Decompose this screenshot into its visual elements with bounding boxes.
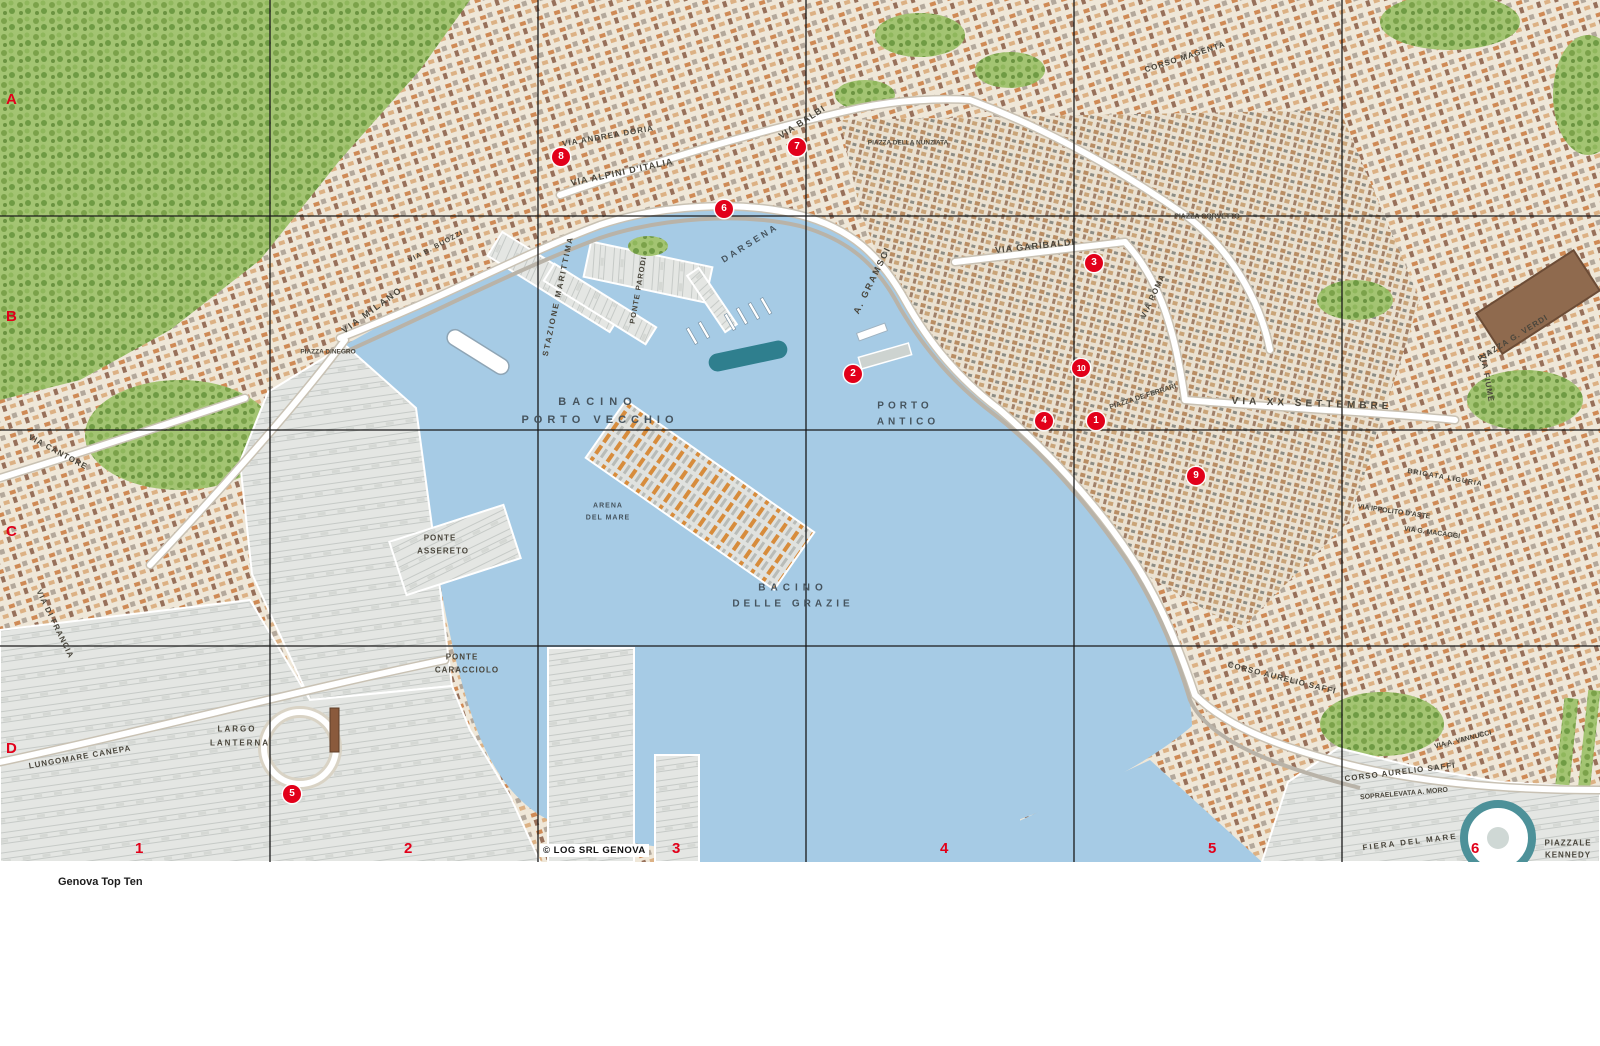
map-label: VIA FIUME [1478, 353, 1495, 403]
map-marker-8: 8 [552, 148, 570, 166]
top-ten-title: Genova Top Ten [58, 876, 186, 890]
map-marker-2: 2 [844, 365, 862, 383]
map-label: DEL MARE [586, 515, 630, 522]
map-label: ARENA [593, 503, 623, 510]
map-label: DARSENA [720, 221, 781, 264]
map-label: PIAZZALE [1544, 839, 1591, 848]
map-label: PORTO VECCHIO [521, 414, 678, 426]
grid-row-label: D [6, 740, 17, 757]
map-label: CARACCIOLO [435, 666, 499, 675]
map-label: CORSO AURELIO SAFFI [1344, 761, 1456, 784]
map-marker-1: 1 [1087, 412, 1105, 430]
grid-row-label: B [6, 308, 17, 325]
map-canvas: BACINOPORTO VECCHIOPORTOANTICOBACINODELL… [0, 0, 1600, 862]
map-overlay: BACINOPORTO VECCHIOPORTOANTICOBACINODELL… [0, 0, 1600, 862]
map-label: VIA DI FRANCIA [34, 588, 75, 660]
map-label: VIA B. BUOZZI [407, 230, 464, 265]
map-label: LANTERNA [210, 739, 270, 748]
grid-row-label: A [6, 91, 17, 108]
map-label: ANTICO [877, 417, 939, 428]
grid-col-label: 1 [135, 840, 143, 857]
map-label: FIERA DEL MARE [1362, 832, 1458, 853]
map-label: DELLE GRAZIE [732, 599, 853, 610]
map-marker-6: 6 [715, 200, 733, 218]
map-label: SOPRAELEVATA A. MORO [1360, 787, 1448, 802]
top-ten-column: Genova Top Ten [36, 876, 186, 1046]
map-label: PORTO [877, 401, 932, 412]
map-label: VIA ALPINI D'ITALIA [570, 156, 675, 188]
map-label: VIA G. MACAGGI [1404, 526, 1461, 541]
map-label: PIAZZA CORVETTO [1174, 214, 1240, 221]
map-label: VIA A. VANNUCCI [1434, 730, 1492, 751]
map-marker-7: 7 [788, 138, 806, 156]
grid-col-label: 4 [940, 840, 948, 857]
map-label: VIA XX SETTEMBRE [1231, 396, 1392, 413]
map-label: VIA IPPOLITO D'ASTE [1357, 503, 1430, 520]
map-label: PIAZZA DELLA NUNZIATA [868, 140, 949, 147]
map-label: PONTE [446, 653, 479, 662]
map-label: VIA ROMA [1139, 272, 1167, 319]
map-label: KENNEDY [1545, 851, 1591, 860]
genova-tourist-map: BACINOPORTO VECCHIOPORTOANTICOBACINODELL… [0, 0, 1600, 1046]
map-label: BACINO [758, 583, 827, 594]
map-label: A. GRAMSCI [851, 245, 892, 316]
grid-col-label: 5 [1208, 840, 1216, 857]
grid-row-label: C [6, 523, 17, 540]
map-label: VIA MILANO [340, 285, 405, 336]
map-label: ASSERETO [417, 547, 469, 556]
map-label: CORSO MAGENTA [1143, 40, 1226, 75]
map-label: BACINO [558, 396, 637, 408]
map-label: LUNGOMARE CANEPA [28, 744, 132, 771]
grid-col-label: 3 [672, 840, 680, 857]
map-label: VIA CANTORE [27, 433, 89, 472]
map-label: PONTE PARODI [628, 255, 649, 324]
map-label: PONTE [424, 534, 457, 543]
map-marker-9: 9 [1187, 467, 1205, 485]
map-marker-10: 10 [1072, 359, 1090, 377]
map-label: PIAZZA DINEGRO [300, 349, 355, 356]
map-copyright: © LOG SRL GENOVA [540, 844, 649, 857]
map-label: VIA BALBI [777, 103, 827, 141]
map-label: BRIGATA LIGURIA [1407, 468, 1483, 488]
map-label: PIAZZA DE FERRARI [1109, 383, 1177, 411]
map-label: STAZIONE MARITTIMA [541, 235, 575, 357]
map-marker-3: 3 [1085, 254, 1103, 272]
map-marker-4: 4 [1035, 412, 1053, 430]
map-marker-5: 5 [283, 785, 301, 803]
map-label: LARGO [218, 725, 257, 734]
map-label: PIAZZA G. VERDI [1476, 313, 1549, 364]
grid-col-label: 6 [1471, 840, 1479, 857]
grid-col-label: 2 [404, 840, 412, 857]
legend: Genova Top Ten [0, 862, 1600, 1046]
map-label: VIA ANDREA DORIA [561, 124, 654, 149]
map-label: VIA GARIBALDI [995, 237, 1076, 255]
map-label: CORSO AURELIO SAFFI [1227, 660, 1337, 696]
